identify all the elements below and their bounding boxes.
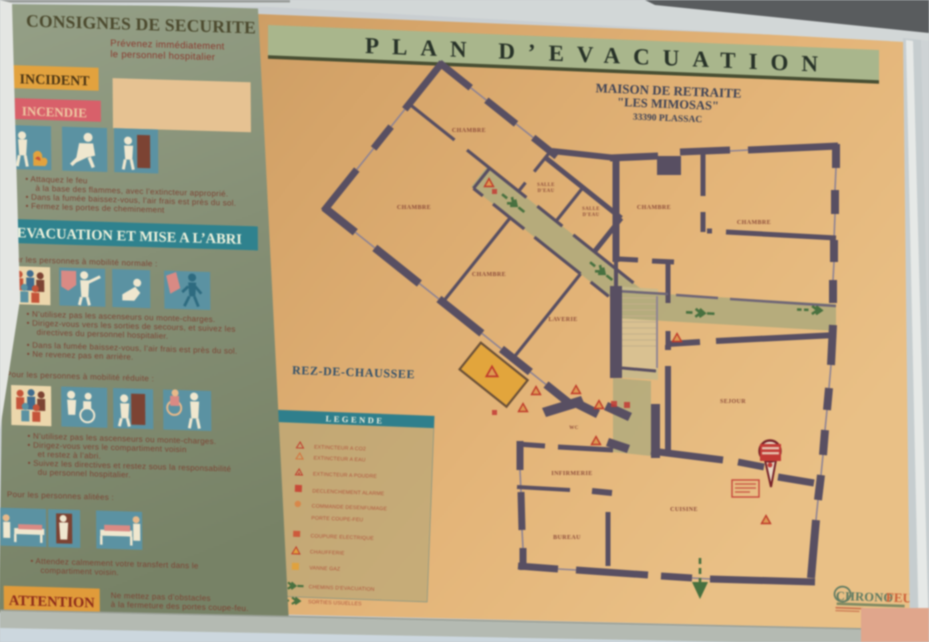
svg-text:SALLE: SALLE bbox=[582, 207, 600, 212]
svg-text:WC: WC bbox=[569, 426, 578, 431]
svg-text:D'EAU: D'EAU bbox=[583, 213, 600, 218]
svg-text:SEJOUR: SEJOUR bbox=[720, 399, 746, 405]
svg-text:INFIRMERIE: INFIRMERIE bbox=[551, 471, 592, 477]
svg-text:INCIDENT: INCIDENT bbox=[20, 72, 91, 89]
svg-text:BUREAU: BUREAU bbox=[553, 535, 581, 541]
svg-text:D'EAU: D'EAU bbox=[538, 189, 555, 194]
svg-text:CHAMBRE: CHAMBRE bbox=[472, 272, 506, 278]
svg-text:CHAMBRE: CHAMBRE bbox=[737, 220, 771, 226]
svg-text:CHAMBRE: CHAMBRE bbox=[452, 128, 486, 134]
svg-text:CHAMBRE: CHAMBRE bbox=[397, 205, 431, 211]
svg-text:ATTENTION: ATTENTION bbox=[9, 593, 96, 612]
svg-text:INCENDIE: INCENDIE bbox=[22, 103, 87, 120]
svg-text:SALLE: SALLE bbox=[537, 183, 555, 188]
svg-text:CHAMBRE: CHAMBRE bbox=[637, 205, 671, 211]
svg-text:FEU: FEU bbox=[886, 590, 913, 606]
svg-text:VANNE GAZ: VANNE GAZ bbox=[309, 565, 340, 572]
svg-text:LAVERIE: LAVERIE bbox=[548, 317, 577, 323]
svg-text:CUISINE: CUISINE bbox=[670, 507, 698, 513]
